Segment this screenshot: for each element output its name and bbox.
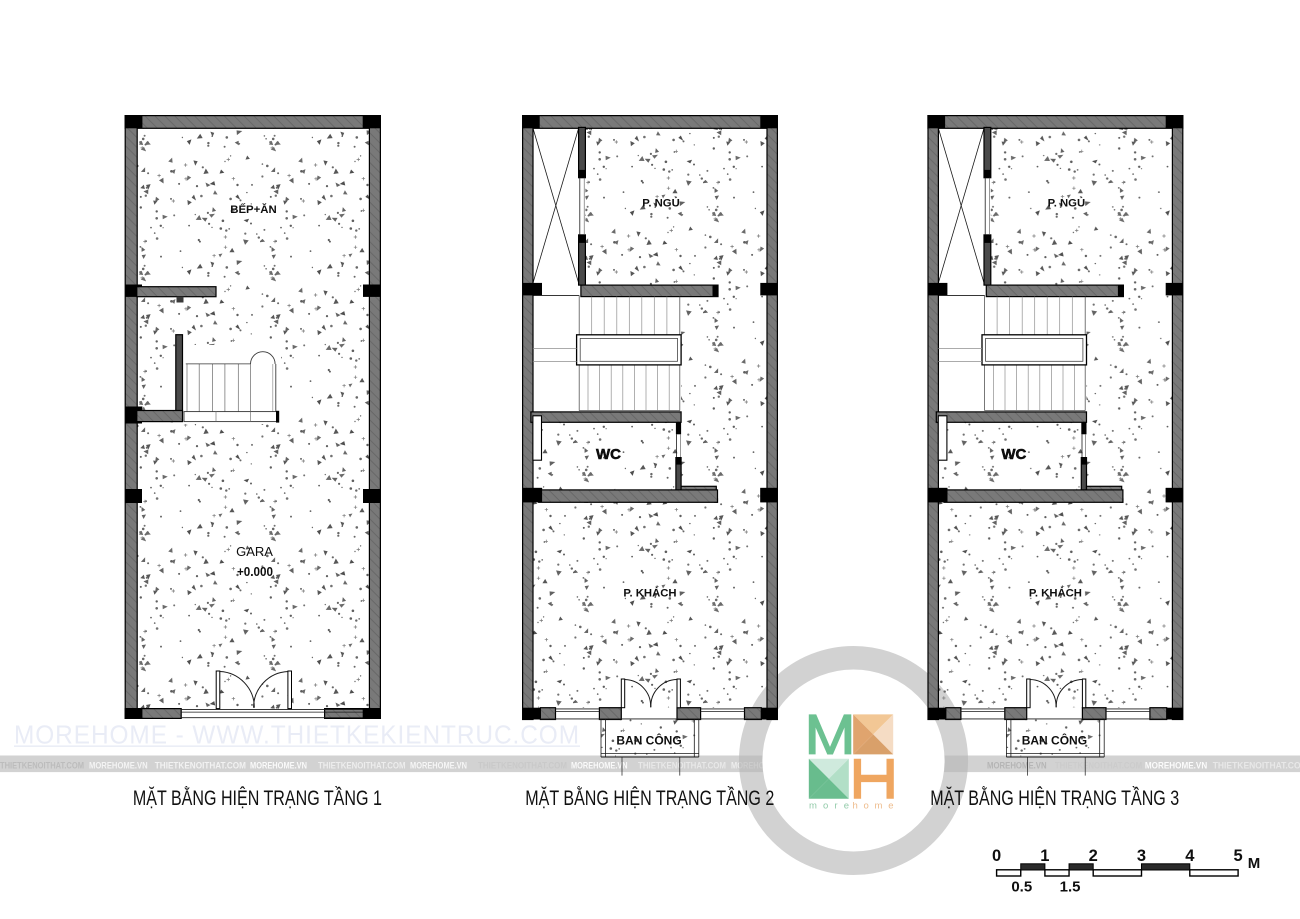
svg-text:THIETKENOITHAT.COM: THIETKENOITHAT.COM [1213, 761, 1300, 772]
svg-text:MOREHOME.VN: MOREHOME.VN [89, 761, 148, 772]
svg-text:P. NGỦ: P. NGỦ [642, 197, 679, 210]
svg-text:0: 0 [992, 847, 1001, 865]
svg-text:THIETKENOITHAT.COM: THIETKENOITHAT.COM [0, 761, 84, 772]
svg-text:1.5: 1.5 [1060, 879, 1081, 896]
svg-text:P. KHÁCH: P. KHÁCH [623, 587, 676, 600]
svg-text:THIETKENOITHAT.COM: THIETKENOITHAT.COM [478, 761, 567, 772]
svg-text:GARA: GARA [236, 544, 273, 559]
svg-text:4: 4 [1185, 847, 1195, 865]
svg-text:MOREHOME - WWW.THIETKEKIENTRUC: MOREHOME - WWW.THIETKEKIENTRUC.COM [14, 719, 580, 749]
svg-text:THIETKENOITHAT.COM: THIETKENOITHAT.COM [155, 761, 246, 772]
svg-text:1: 1 [1040, 847, 1049, 865]
svg-text:+0.000: +0.000 [237, 564, 273, 579]
svg-text:2: 2 [1089, 847, 1098, 865]
svg-text:BAN CÔNG: BAN CÔNG [616, 733, 681, 748]
svg-text:MOREHOME.VN: MOREHOME.VN [571, 761, 628, 772]
svg-text:M: M [1248, 855, 1261, 872]
svg-text:MOREHOME.VN: MOREHOME.VN [1145, 761, 1207, 772]
svg-text:THIETKENOITHAT.COM: THIETKENOITHAT.COM [318, 761, 406, 772]
svg-text:MOREHOME.VN: MOREHOME.VN [410, 761, 467, 772]
svg-text:MẶT BẰNG HIỆN TRẠNG TẦNG 1: MẶT BẰNG HIỆN TRẠNG TẦNG 1 [133, 785, 382, 810]
svg-text:BẾP+ĂN: BẾP+ĂN [230, 203, 277, 216]
svg-text:MẶT BẰNG HIỆN TRẠNG TẦNG 3: MẶT BẰNG HIỆN TRẠNG TẦNG 3 [930, 785, 1179, 810]
svg-text:MOREHOME.VN: MOREHOME.VN [987, 761, 1047, 772]
svg-text:3: 3 [1137, 847, 1146, 865]
svg-text:THIETKENOITHAT.COM: THIETKENOITHAT.COM [638, 761, 726, 772]
svg-text:WC: WC [596, 446, 621, 463]
svg-text:5: 5 [1234, 847, 1243, 865]
svg-text:MẶT BẰNG HIỆN TRẠNG TẦNG 2: MẶT BẰNG HIỆN TRẠNG TẦNG 2 [525, 785, 774, 810]
svg-text:THIETKENOITHAT.COM: THIETKENOITHAT.COM [1055, 761, 1142, 772]
svg-text:MOREHOME.VN: MOREHOME.VN [250, 761, 307, 772]
svg-text:0.5: 0.5 [1011, 879, 1032, 896]
